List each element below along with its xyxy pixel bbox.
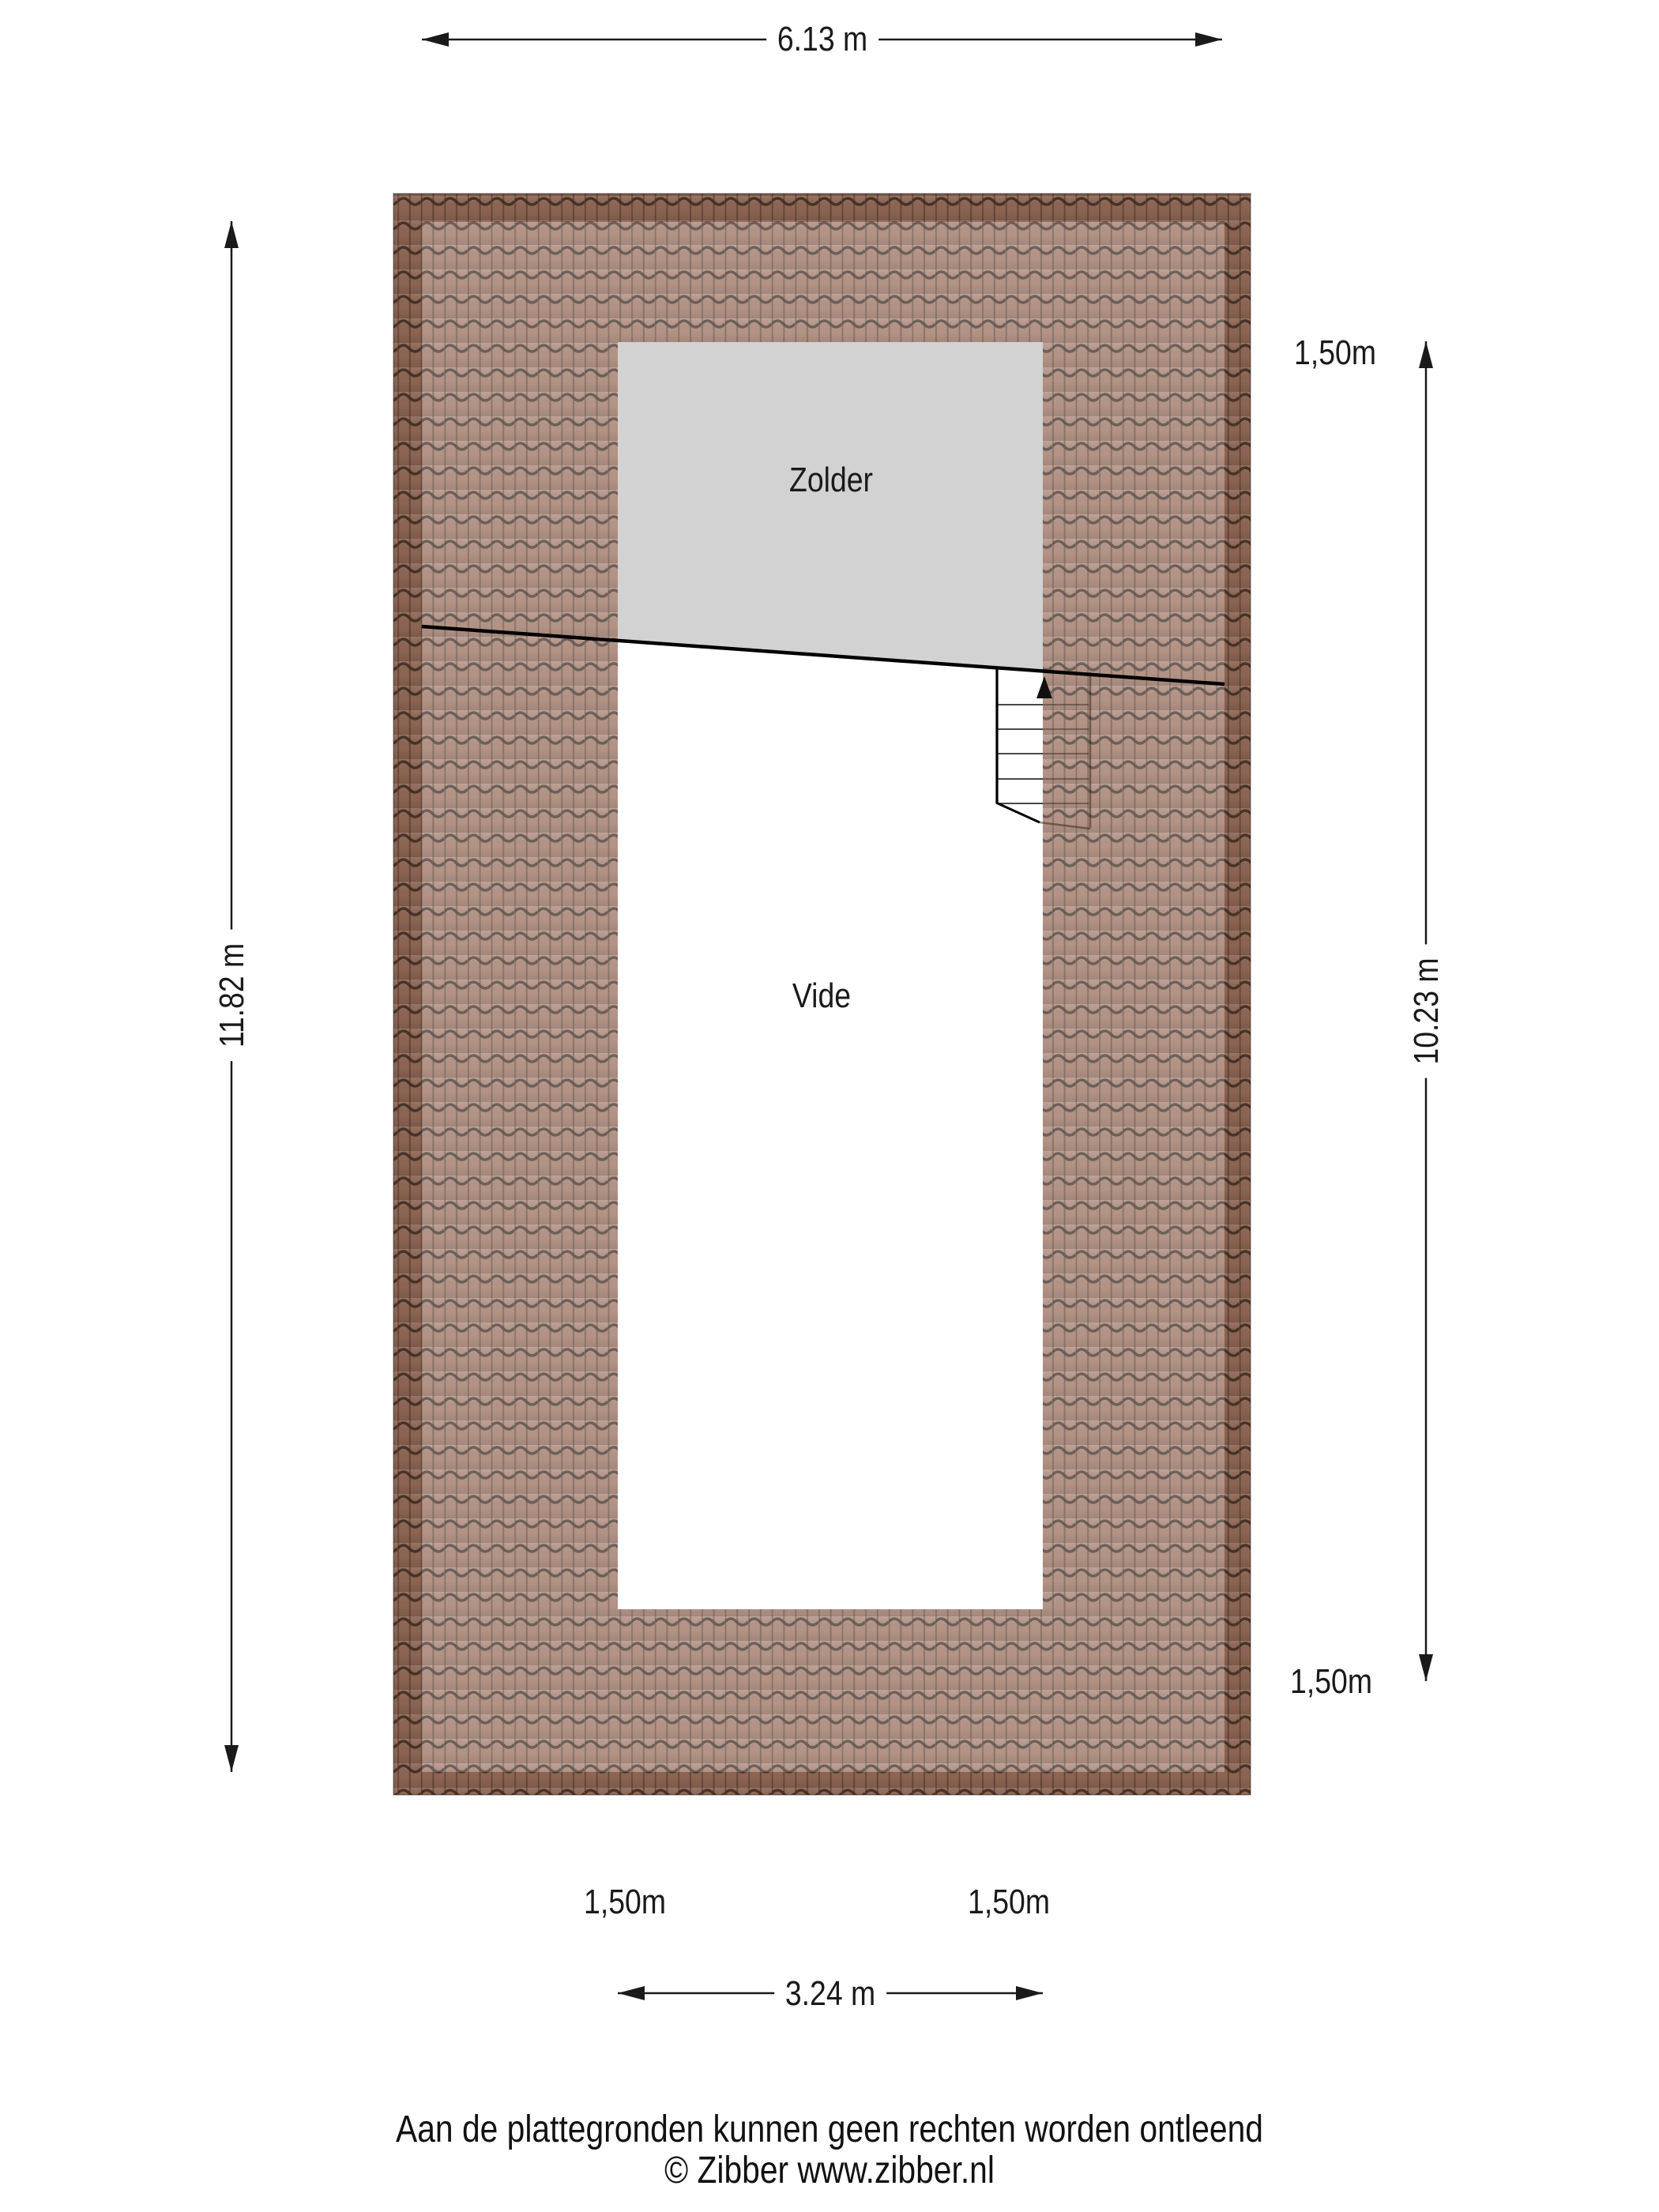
floorplan-graphics — [0, 0, 1659, 2212]
zolder-label: Zolder — [789, 463, 873, 498]
height-label-bottom-left: 1,50m — [584, 1885, 666, 1920]
height-label-right-top: 1,50m — [1294, 336, 1376, 371]
dimension-bottom-label: 3.24 m — [774, 1973, 886, 2014]
dimension-right-label: 10.23 m — [1406, 944, 1447, 1078]
height-label-right-bottom: 1,50m — [1290, 1665, 1372, 1699]
vide-label: Vide — [792, 979, 851, 1014]
dimension-top-label: 6.13 m — [766, 19, 878, 60]
height-label-bottom-right: 1,50m — [968, 1885, 1050, 1920]
zolder-area — [618, 342, 1043, 671]
vide-area — [618, 641, 1043, 1609]
footer-disclaimer: Aan de plattegronden kunnen geen rechten… — [396, 2111, 1263, 2149]
floorplan-canvas: Zolder Vide 6.13 m 11.82 m 10.23 m 3.24 … — [0, 0, 1659, 2212]
footer-copyright: © Zibber www.zibber.nl — [664, 2152, 995, 2190]
dimension-left-label: 11.82 m — [212, 930, 253, 1061]
